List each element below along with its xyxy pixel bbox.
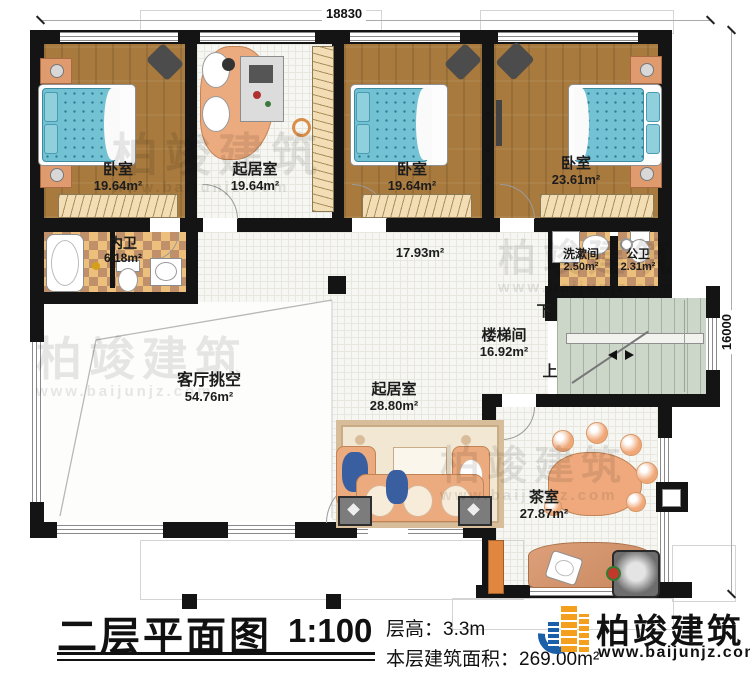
dimension-right: 16000 xyxy=(719,310,734,354)
window-bottom-1 xyxy=(57,525,163,535)
pillow xyxy=(356,92,370,122)
window-left xyxy=(32,342,42,502)
bed-sheet xyxy=(104,88,120,160)
logo-icon xyxy=(538,602,592,660)
bed-sheet xyxy=(574,88,589,160)
side-table xyxy=(458,496,492,526)
wall-bottom-2 xyxy=(163,522,228,538)
pillow xyxy=(646,92,660,122)
window-top-2 xyxy=(200,32,315,42)
room-label-public-toilet: 公卫2.31m² xyxy=(612,248,664,274)
pillow xyxy=(646,124,660,154)
room-label-sitting-top: 起居室19.64m² xyxy=(195,162,315,193)
tea-stool xyxy=(620,434,642,456)
toilet xyxy=(118,268,138,292)
stair-down-label: 下 xyxy=(532,304,556,321)
bed-sheet xyxy=(416,88,432,160)
side-table xyxy=(338,496,372,526)
hoop-decor xyxy=(292,118,311,137)
window-top-1 xyxy=(60,32,178,42)
door-gap-bedroom-2 xyxy=(352,218,386,232)
floor-plan: 18830 16000 xyxy=(0,0,750,675)
room-label-bedroom-2: 卧室19.64m² xyxy=(352,162,472,193)
title-underline-1 xyxy=(57,652,375,655)
wall-stair-right-1 xyxy=(706,286,720,318)
tea-stool xyxy=(626,492,646,512)
closet xyxy=(58,194,178,218)
room-label-living-void: 客厅挑空54.76m² xyxy=(142,372,276,404)
wall-washroom-bottom xyxy=(548,286,672,298)
wall-tv xyxy=(496,100,502,146)
door-gap-tea xyxy=(502,394,536,407)
room-label-stairwell: 楼梯间16.92m² xyxy=(452,328,556,359)
plan-scale: 1:100 xyxy=(288,612,372,650)
stair-direction-arrow xyxy=(608,350,617,360)
person xyxy=(222,58,235,71)
tea-stool xyxy=(636,462,658,484)
person xyxy=(386,470,408,504)
void-outline xyxy=(44,296,334,524)
wall-bath-right xyxy=(186,232,198,304)
chair xyxy=(202,96,230,132)
wall-bed2-bed3 xyxy=(482,44,494,218)
window-tea-2 xyxy=(660,512,670,582)
closet xyxy=(540,194,654,218)
logo-url: www.baijunjz.com xyxy=(598,644,750,662)
stair-landing-line xyxy=(684,300,685,392)
door-gap-sitting-top xyxy=(203,218,237,232)
room-label-washroom: 洗漱间2.50m² xyxy=(550,248,612,274)
window-bottom-2 xyxy=(228,525,295,535)
room-label-bedroom-1: 卧室19.64m² xyxy=(58,162,178,193)
room-label-sitting-lower: 起居室28.80m² xyxy=(338,382,450,413)
window-tea-1 xyxy=(660,438,670,482)
room-label-hallway: 17.93m² xyxy=(380,246,460,261)
window-top-4 xyxy=(498,32,638,42)
pillow xyxy=(356,124,370,154)
stair-direction-arrow xyxy=(625,350,634,360)
room-label-tea-room: 茶室27.87m² xyxy=(494,490,594,521)
stair-up-label: 上 xyxy=(538,364,562,381)
wall-bottom-1 xyxy=(30,522,57,538)
dimension-line-top xyxy=(40,20,712,21)
nightstand xyxy=(40,58,72,84)
wall-tea-right-1 xyxy=(658,407,672,438)
tea-stool xyxy=(552,430,574,452)
tea-stool xyxy=(586,422,608,444)
nightstand xyxy=(630,56,662,84)
plant xyxy=(606,566,621,581)
wall-bath-bottom xyxy=(30,292,198,304)
column-porch-2 xyxy=(326,594,341,609)
dimension-top: 18830 xyxy=(322,6,366,21)
door-leaf xyxy=(488,540,504,594)
chimney-flue xyxy=(662,489,681,507)
door-gap-bedroom-3 xyxy=(500,218,534,232)
room-label-inner-bath: 内卫6.18m² xyxy=(78,236,168,265)
title-underline-2 xyxy=(57,659,375,661)
room-label-bedroom-3: 卧室23.61m² xyxy=(516,156,636,187)
pillow xyxy=(44,124,58,154)
window-top-3 xyxy=(350,32,460,42)
floor-height-label: 层高：3.3m xyxy=(386,614,485,641)
piano xyxy=(240,56,284,122)
logo: 柏竣建筑 www.baijunjz.com xyxy=(538,602,748,664)
porch-outline-bottom xyxy=(140,540,524,600)
wall-toprow-bottom xyxy=(44,218,658,232)
window-stair xyxy=(708,318,718,370)
closet xyxy=(362,194,472,218)
door-gap-bath xyxy=(150,218,180,232)
closet xyxy=(312,46,334,212)
pillow xyxy=(44,92,58,122)
column-center xyxy=(328,276,346,294)
